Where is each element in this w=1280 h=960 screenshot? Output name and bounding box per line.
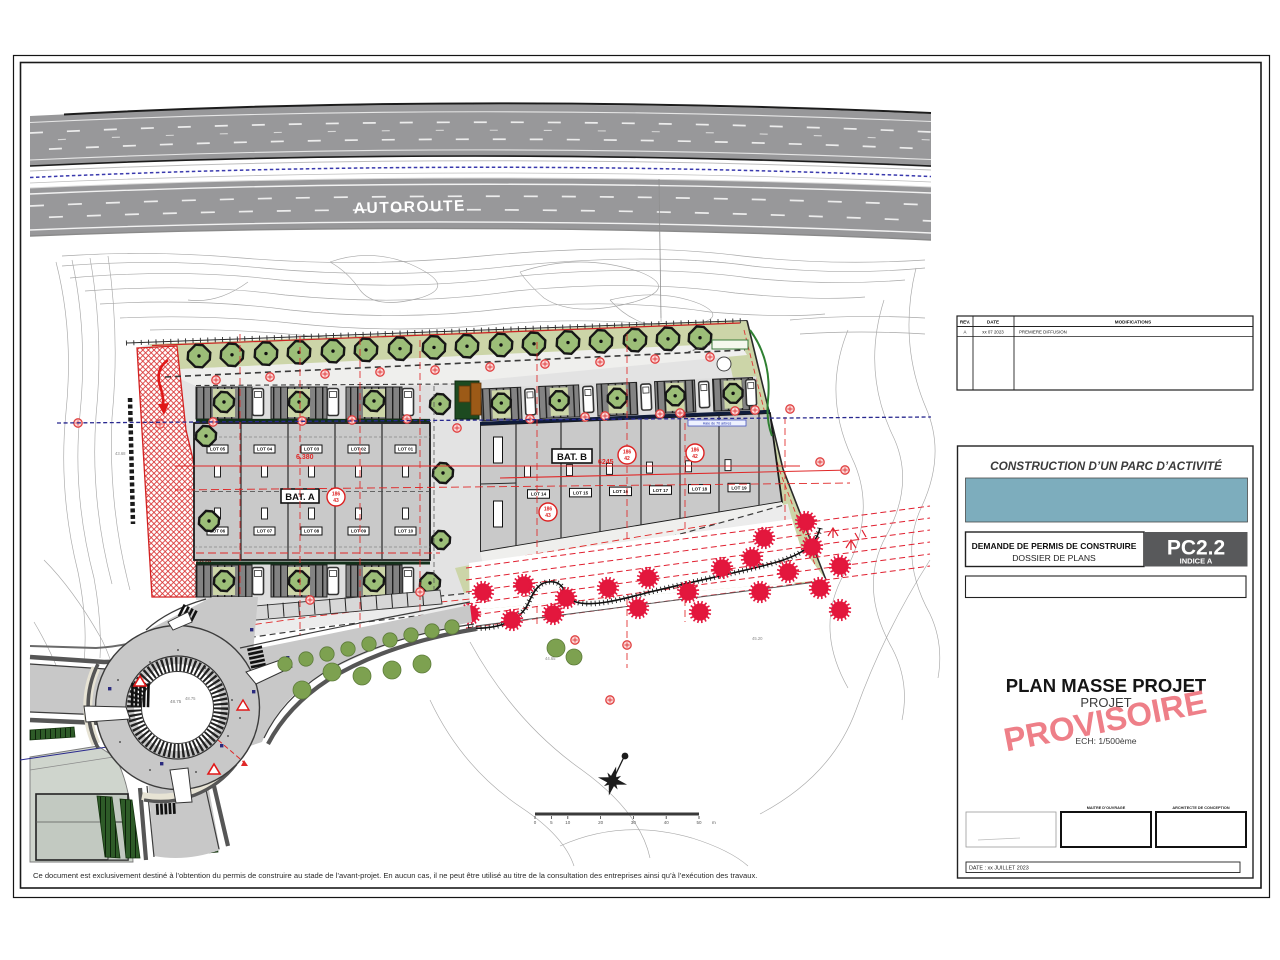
svg-text:REV.: REV. [960, 320, 970, 325]
svg-text:ECH: 1/500ème: ECH: 1/500ème [1075, 736, 1136, 746]
svg-text:DATE : xx JUILLET 2023: DATE : xx JUILLET 2023 [969, 866, 1029, 872]
svg-text:186: 186 [544, 507, 553, 513]
svg-text:Haie de 70 arbres: Haie de 70 arbres [703, 422, 732, 426]
svg-text:LOT 07: LOT 07 [257, 529, 273, 534]
svg-text:6.380: 6.380 [296, 454, 314, 461]
svg-text:LOT 08: LOT 08 [304, 529, 320, 534]
svg-text:10: 10 [565, 820, 571, 825]
svg-text:42: 42 [692, 454, 698, 460]
svg-text:44.65: 44.65 [545, 656, 556, 661]
svg-text:BAT. B: BAT. B [557, 452, 587, 463]
svg-text:Ce document est exclusivement: Ce document est exclusivement destiné à … [33, 871, 757, 880]
svg-text:LOT 19: LOT 19 [731, 485, 747, 490]
svg-text:LOT 09: LOT 09 [351, 529, 367, 534]
svg-text:LOT 02: LOT 02 [351, 447, 367, 452]
svg-text:LOT 15: LOT 15 [573, 490, 589, 495]
svg-text:40: 40 [664, 820, 670, 825]
svg-text:186: 186 [691, 448, 700, 454]
svg-text:m: m [712, 820, 716, 825]
svg-text:48.75: 48.75 [170, 699, 182, 704]
svg-text:6245: 6245 [598, 459, 614, 466]
svg-text:LOT 04: LOT 04 [257, 447, 273, 452]
svg-text:xx 07 2023: xx 07 2023 [982, 330, 1004, 335]
svg-text:DATE: DATE [987, 320, 999, 325]
svg-text:LOT 17: LOT 17 [653, 488, 669, 493]
svg-text:LOT 10: LOT 10 [398, 529, 414, 534]
svg-text:LOT 03: LOT 03 [304, 447, 320, 452]
svg-text:CONSTRUCTION D’UN PARC D’ACTIV: CONSTRUCTION D’UN PARC D’ACTIVITÉ [990, 459, 1223, 473]
svg-text:LOT 05: LOT 05 [210, 447, 226, 452]
svg-text:PREMIERE DIFFUSION: PREMIERE DIFFUSION [1019, 330, 1067, 335]
svg-text:30: 30 [631, 820, 637, 825]
svg-text:43: 43 [333, 498, 339, 504]
svg-text:MODIFICATIONS: MODIFICATIONS [1115, 320, 1151, 325]
svg-text:LOT 14: LOT 14 [531, 492, 547, 497]
svg-text:43.68: 43.68 [115, 451, 126, 456]
svg-text:DOSSIER DE PLANS: DOSSIER DE PLANS [1012, 553, 1096, 563]
svg-text:42: 42 [624, 456, 630, 462]
svg-text:LOT 18: LOT 18 [692, 487, 708, 492]
svg-text:INDICE A: INDICE A [1180, 557, 1213, 566]
svg-text:20: 20 [598, 820, 604, 825]
svg-text:45.20: 45.20 [752, 636, 763, 641]
svg-text:43: 43 [545, 513, 551, 519]
svg-text:A: A [964, 330, 967, 335]
svg-text:186: 186 [332, 492, 341, 498]
svg-text:LOT 01: LOT 01 [398, 447, 414, 452]
svg-text:DEMANDE DE PERMIS DE CONSTRUIR: DEMANDE DE PERMIS DE CONSTRUIRE [972, 541, 1137, 551]
svg-text:ARCHITECTE DE CONCEPTION: ARCHITECTE DE CONCEPTION [1172, 806, 1229, 810]
svg-text:186: 186 [623, 450, 632, 456]
svg-text:LOT 16: LOT 16 [613, 489, 629, 494]
svg-text:48.75: 48.75 [185, 696, 196, 701]
svg-text:AUTOROUTE: AUTOROUTE [354, 198, 467, 218]
svg-text:MAITRE D’OUVRAGE: MAITRE D’OUVRAGE [1087, 806, 1126, 810]
svg-text:50: 50 [696, 820, 702, 825]
